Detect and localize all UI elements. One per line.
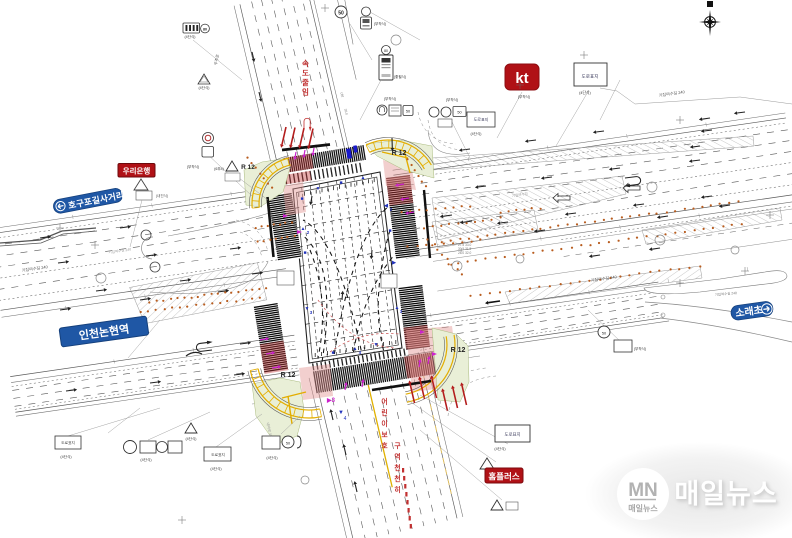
svg-text:50: 50 — [338, 11, 344, 17]
svg-text:줄: 줄 — [302, 78, 309, 87]
svg-text:홈플러스: 홈플러스 — [488, 472, 519, 482]
svg-text:(4단식): (4단식) — [184, 34, 195, 39]
svg-text:(부착식): (부착식) — [446, 97, 458, 102]
svg-text:어: 어 — [381, 397, 387, 406]
svg-text:히: 히 — [394, 485, 400, 494]
svg-text:도로표지: 도로표지 — [504, 431, 520, 438]
svg-text:50: 50 — [406, 110, 410, 114]
svg-text:천: 천 — [394, 463, 400, 472]
svg-text:도로표지: 도로표지 — [582, 73, 599, 80]
svg-text:(4단식): (4단식) — [60, 454, 71, 459]
svg-text:이: 이 — [381, 419, 387, 428]
svg-text:도: 도 — [302, 69, 309, 78]
svg-text:R 12: R 12 — [451, 347, 466, 354]
svg-text:■: ■ — [388, 228, 391, 234]
svg-text:천: 천 — [394, 474, 400, 483]
svg-text:(좋필식): (좋필식) — [394, 74, 406, 79]
svg-text:속: 속 — [302, 58, 309, 68]
svg-text:(부착식): (부착식) — [634, 346, 646, 351]
svg-text:매일뉴스: 매일뉴스 — [628, 503, 658, 513]
svg-text:28.0 32.0: 28.0 32.0 — [458, 251, 472, 255]
svg-text:■: ■ — [331, 350, 334, 356]
svg-text:(4단식): (4단식) — [470, 131, 481, 136]
svg-text:(부착식): (부착식) — [384, 96, 396, 101]
svg-text:■: ■ — [339, 180, 342, 186]
svg-text:50: 50 — [286, 442, 290, 446]
svg-text:▲: ▲ — [361, 175, 366, 181]
svg-text:호: 호 — [381, 441, 388, 450]
svg-text:■: ■ — [300, 196, 303, 202]
svg-text:(4단식): (4단식) — [210, 466, 221, 471]
svg-text:(내진식): (내진식) — [156, 193, 168, 198]
svg-text:(4단식): (4단식) — [494, 446, 505, 451]
svg-text:우리은행: 우리은행 — [123, 166, 151, 176]
svg-text:▲: ▲ — [395, 305, 400, 311]
svg-text:▼: ▼ — [374, 342, 379, 348]
svg-text:50: 50 — [457, 111, 461, 115]
svg-text:린: 린 — [381, 408, 387, 417]
svg-text:MN: MN — [628, 480, 658, 501]
svg-text:80: 80 — [384, 49, 388, 53]
svg-text:▲: ▲ — [301, 226, 306, 232]
svg-text:R 12: R 12 — [281, 372, 296, 379]
svg-text:4: 4 — [344, 416, 347, 422]
svg-text:도로표지: 도로표지 — [211, 452, 225, 457]
svg-text:임: 임 — [302, 87, 309, 97]
svg-text:(4단식): (4단식) — [198, 85, 209, 90]
svg-text:역: 역 — [394, 452, 400, 461]
svg-text:80: 80 — [203, 27, 207, 31]
svg-text:■: ■ — [303, 250, 306, 256]
svg-text:▲: ▲ — [353, 346, 358, 352]
svg-text:(부착식): (부착식) — [187, 164, 199, 169]
svg-text:50: 50 — [602, 332, 606, 336]
svg-text:▼: ▼ — [316, 186, 321, 192]
svg-text:▼: ▼ — [305, 306, 310, 312]
svg-text:(4단식): (4단식) — [140, 457, 151, 462]
svg-text:(4단식): (4단식) — [185, 436, 196, 441]
svg-text:보: 보 — [381, 431, 388, 439]
svg-text:(4단식): (4단식) — [266, 455, 277, 460]
svg-text:(4단식): (4단식) — [579, 90, 591, 95]
svg-text:(6부4): (6부4) — [214, 166, 224, 171]
svg-text:R 12: R 12 — [392, 150, 407, 157]
svg-text:◀: ◀ — [383, 203, 388, 209]
svg-text:(부착식): (부착식) — [374, 21, 386, 26]
svg-text:도로표지: 도로표지 — [474, 116, 489, 122]
svg-text:▶3: ▶3 — [326, 397, 336, 404]
svg-text:R 12: R 12 — [241, 164, 255, 171]
svg-text:kt: kt — [515, 70, 528, 87]
svg-text:(부착식): (부착식) — [518, 94, 530, 99]
svg-text:도로표지: 도로표지 — [61, 440, 75, 445]
svg-text:매일뉴스: 매일뉴스 — [674, 479, 777, 509]
svg-text:구: 구 — [394, 442, 401, 450]
